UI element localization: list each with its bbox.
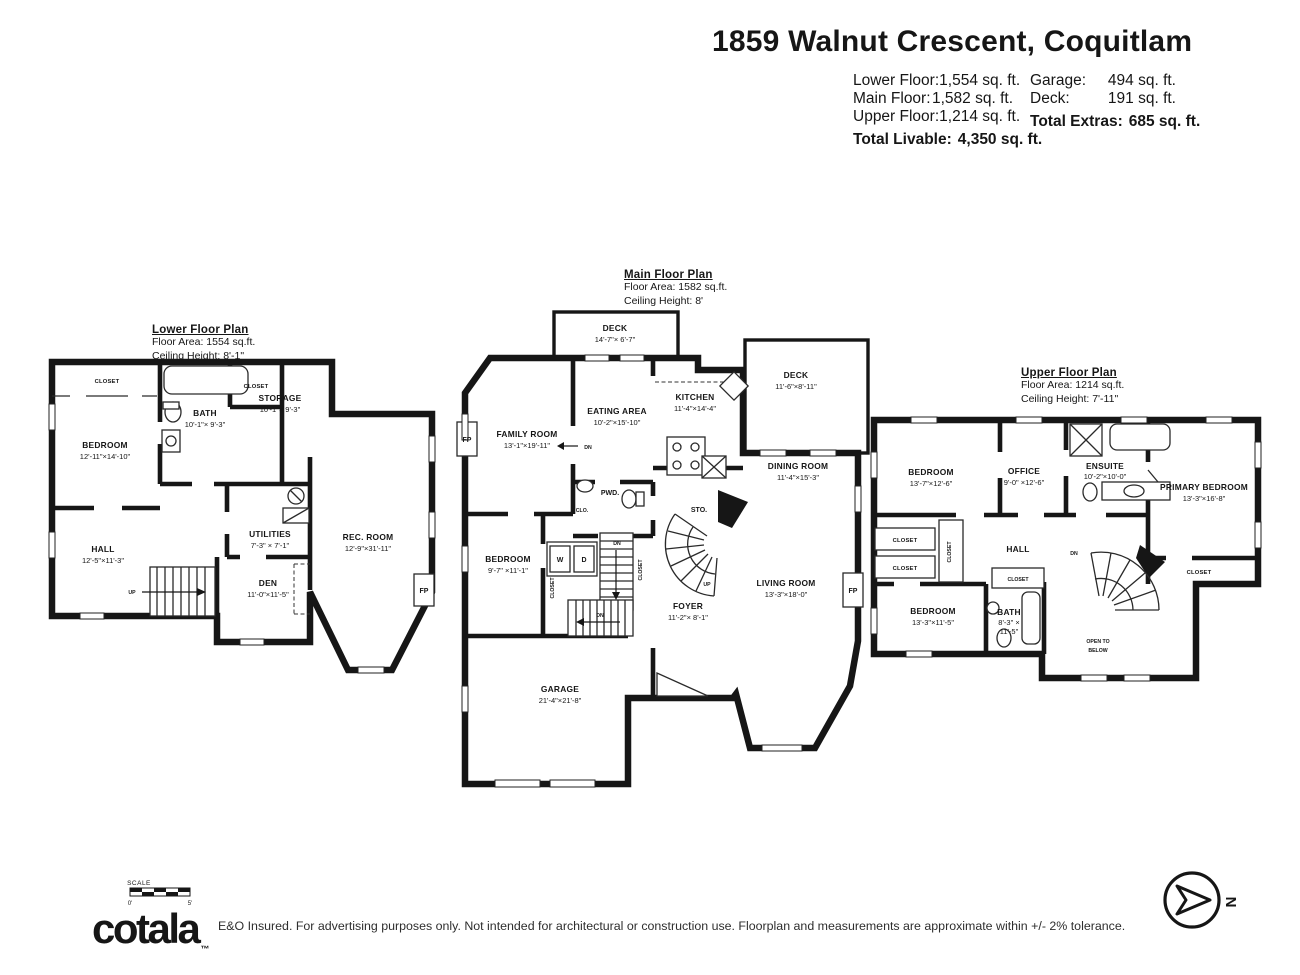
upper-floor-title: Upper Floor Plan [1021, 367, 1124, 379]
floorplan-page: 1859 Walnut Crescent, Coquitlam Lower Fl… [0, 0, 1300, 975]
closet-label: CLOSET [1187, 570, 1212, 576]
stat-value: 494 sq. ft. [1108, 72, 1176, 90]
powder-sink-icon [577, 480, 593, 492]
room-name: LIVING ROOM [756, 578, 815, 588]
room-dims: 12'-11"×14'-10" [80, 452, 131, 461]
bathtub-icon [1110, 424, 1170, 450]
compass-north-label: N [1222, 897, 1239, 908]
room-dims: 8'-3" × [998, 618, 1019, 627]
room-name: UTILITIES [249, 529, 291, 539]
stairs-up-label: UP [128, 590, 136, 596]
stat-lower-floor: Lower Floor: 1,554 sq. ft. [853, 72, 1013, 90]
stairs-dn-label: DN [613, 541, 621, 547]
main-floor-plan: DECK 14'-7"× 6'-7" DECK 11'-6"×8'-11" FA… [450, 296, 870, 796]
stat-total-livable: Total Livable: 4,350 sq. ft. [853, 130, 1013, 149]
room-dims: 11'-0"×11'-5" [247, 590, 289, 599]
page-title: 1859 Walnut Crescent, Coquitlam [712, 25, 1175, 59]
lower-floor-title: Lower Floor Plan [152, 324, 255, 336]
room-name: DECK [603, 323, 628, 333]
room-dims: 7'-3" × 7'-1" [251, 541, 290, 550]
room-name: STO. [691, 507, 707, 514]
stat-value: 685 sq. ft. [1129, 112, 1201, 131]
stat-label: Total Extras: [1030, 112, 1123, 131]
compass-arrow [1177, 886, 1210, 914]
closet-label: CLOSET [893, 566, 918, 572]
room-dims: 14'-7"× 6'-7" [595, 335, 636, 344]
room-dims: 13'-3"×18'-0" [765, 590, 808, 599]
stat-main-floor: Main Floor: 1,582 sq. ft. [853, 90, 1013, 108]
scale-label: SCALE [127, 880, 151, 887]
room-name: BATH [193, 408, 217, 418]
upper-floor-header: Upper Floor Plan Floor Area: 1214 sq.ft.… [1021, 367, 1124, 407]
washer-label: W [557, 557, 564, 564]
room-name: BEDROOM [485, 554, 531, 564]
room-name: EATING AREA [587, 406, 647, 416]
stats-livable: Lower Floor: 1,554 sq. ft. Main Floor: 1… [853, 72, 1013, 149]
room-dims: 21'-4"×21'-8" [539, 696, 582, 705]
room-dims: 13'-1"×19'-11" [504, 441, 551, 450]
room-dims: 11'-5" [1000, 627, 1019, 636]
room-dims: 11'-4"×15'-3" [777, 473, 819, 482]
room-name: HALL [1006, 544, 1029, 554]
stat-value: 1,214 sq. ft. [939, 108, 1020, 126]
room-dims: 10'-2"×15'-10" [594, 418, 641, 427]
stat-value: 4,350 sq. ft. [958, 130, 1042, 149]
room-dims: 13'-3"×11'-5" [912, 618, 954, 627]
stat-value: 1,582 sq. ft. [932, 90, 1013, 108]
steps-dn-label: DN [584, 445, 592, 451]
room-name: FAMILY ROOM [497, 429, 558, 439]
fireplace-label: FP [849, 588, 858, 595]
stat-value: 191 sq. ft. [1108, 90, 1176, 108]
scale-bar: SCALE 0' 5' [118, 876, 202, 908]
room-name: REC. ROOM [343, 532, 394, 542]
open-to-below-label: BELOW [1088, 648, 1107, 654]
logo-trademark: ™ [200, 944, 209, 954]
closet-label: CLO. [576, 508, 589, 514]
room-dims: 12'-5"×11'-3" [82, 556, 124, 565]
stat-label: Lower Floor: [853, 72, 939, 90]
stat-upper-floor: Upper Floor: 1,214 sq. ft. [853, 108, 1013, 126]
room-dims: 11'-4"×14'-4" [674, 404, 716, 413]
room-name: KITCHEN [676, 392, 715, 402]
closet-label: CLOSET [1007, 577, 1029, 583]
open-to-below-label: OPEN TO [1086, 639, 1109, 645]
powder-toilet-icon [622, 490, 636, 508]
stat-deck: Deck: 191 sq. ft. [1030, 90, 1176, 108]
room-dims: 10'-2"×10'-0" [1084, 472, 1127, 481]
stat-label: Upper Floor: [853, 108, 939, 126]
stat-garage: Garage: 494 sq. ft. [1030, 72, 1176, 90]
closet-label: CLOSET [244, 384, 269, 390]
closet-label: CLOSET [893, 538, 918, 544]
room-dims: 10'-1"× 9'-3" [260, 405, 301, 414]
room-name: BATH [997, 607, 1021, 617]
closet-label: CLOSET [550, 577, 556, 599]
lower-floor-area: Floor Area: 1554 sq.ft. [152, 336, 255, 350]
stat-total-extras: Total Extras: 685 sq. ft. [1030, 112, 1176, 131]
fireplace-label: FP [420, 588, 429, 595]
upper-floor-plan: BEDROOM 13'-7"×12'-6" OFFICE 9'-0" ×12'-… [866, 412, 1266, 687]
room-dims: 12'-9"×31'-11" [345, 544, 392, 553]
closet-label: CLOSET [95, 379, 120, 385]
room-name: GARAGE [541, 684, 579, 694]
room-dims: 13'-7"×12'-6" [910, 479, 953, 488]
stat-label: Garage: [1030, 72, 1086, 90]
main-floor-area: Floor Area: 1582 sq.ft. [624, 281, 727, 295]
stat-label: Deck: [1030, 90, 1070, 108]
main-floor-title: Main Floor Plan [624, 269, 727, 281]
upper-floor-ceiling: Ceiling Height: 7'-11" [1021, 393, 1124, 407]
stairs-dn-label: DN [596, 613, 604, 619]
bathtub-icon [164, 366, 248, 394]
room-name: BEDROOM [908, 467, 954, 477]
room-dims: 9'-7" ×11'-1" [488, 566, 528, 575]
room-name: FOYER [673, 601, 703, 611]
room-name: DEN [259, 578, 277, 588]
room-name: BEDROOM [910, 606, 956, 616]
room-dims: 9'-0" ×12'-6" [1004, 478, 1045, 487]
stats-extras: Garage: 494 sq. ft. Deck: 191 sq. ft. To… [1030, 72, 1176, 131]
lower-floor-plan: CLOSET BEDROOM 12'-11"×14'-10" BATH 10'-… [42, 352, 442, 692]
room-dims: 13'-3"×16'-8" [1183, 494, 1226, 503]
room-name: DINING ROOM [768, 461, 828, 471]
room-name: PWD. [601, 490, 619, 497]
closet-label: CLOSET [638, 559, 644, 581]
room-dims: 10'-1"× 9'-3" [185, 420, 226, 429]
stat-value: 1,554 sq. ft. [939, 72, 1020, 90]
sink-icon [162, 430, 180, 452]
room-name: OFFICE [1008, 466, 1040, 476]
bathtub-icon [1022, 592, 1040, 644]
upper-floor-area: Floor Area: 1214 sq.ft. [1021, 379, 1124, 393]
stove-icon [667, 437, 705, 475]
lower-floor-walls [52, 362, 432, 670]
room-name: DECK [784, 370, 809, 380]
logo-text: cotala [92, 905, 198, 952]
room-name: STORAGE [258, 393, 301, 403]
compass-icon: N [1156, 862, 1240, 946]
room-dims: 11'-2"× 8'-1" [668, 613, 708, 622]
room-name: HALL [91, 544, 114, 554]
room-name: BEDROOM [82, 440, 128, 450]
room-name: ENSUITE [1086, 461, 1124, 471]
cotala-logo: cotala™ [92, 908, 207, 950]
stat-label: Total Livable: [853, 130, 952, 149]
stairs-dn-label: DN [1070, 551, 1078, 557]
stat-label: Main Floor: [853, 90, 931, 108]
stairs-up-label: UP [703, 582, 711, 588]
closet-label: CLOSET [947, 541, 953, 563]
room-name: PRIMARY BEDROOM [1160, 482, 1248, 492]
disclaimer-text: E&O Insured. For advertising purposes on… [218, 919, 1125, 933]
dryer-label: D [581, 557, 586, 564]
fireplace-label: FP [463, 437, 472, 444]
room-dims: 11'-6"×8'-11" [775, 382, 817, 391]
toilet-icon [1083, 483, 1097, 501]
